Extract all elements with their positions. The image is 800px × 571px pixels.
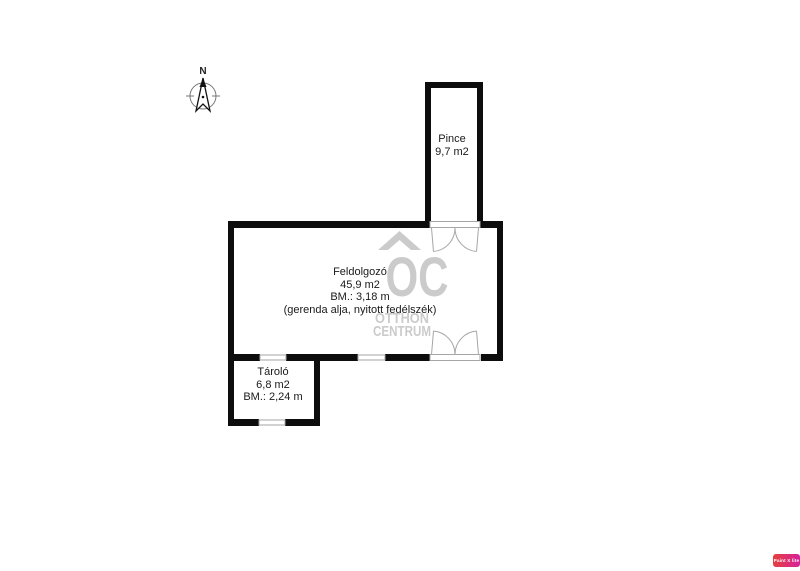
window-main-bottom [358, 355, 385, 360]
room-name: Tároló [227, 366, 319, 379]
room-label-pince: Pince 9,7 m2 [412, 133, 492, 158]
watermark-line2: CENTRUM [373, 323, 431, 340]
room-ceiling-height: BM.: 2,24 m [227, 391, 319, 404]
pince-wall-top [425, 82, 483, 88]
paint-x-lite-badge: Paint X lite [773, 554, 800, 567]
main-wall-bottom-seg1 [228, 354, 260, 361]
door-leaf-left [432, 331, 434, 355]
room-area: 45,9 m2 [240, 279, 480, 292]
compass-needle-tip [200, 78, 207, 87]
main-wall-bottom-seg3 [385, 354, 430, 361]
room-area: 6,8 m2 [227, 379, 319, 392]
compass-hub [202, 96, 205, 99]
double-door-main-bottom [430, 331, 480, 361]
north-label: N [199, 66, 206, 77]
tarolo-wall-bottom-seg1 [228, 419, 259, 426]
room-note: (gerenda alja, nyitott fedélszék) [240, 304, 480, 317]
door-frame [430, 222, 480, 228]
room-name: Pince [412, 133, 492, 146]
room-label-tarolo: Tároló 6,8 m2 BM.: 2,24 m [227, 366, 319, 404]
door-arc-right [455, 331, 477, 355]
room-area: 9,7 m2 [412, 146, 492, 159]
window-tarolo-top [260, 355, 286, 360]
main-wall-bottom-seg2 [286, 354, 358, 361]
door-leaf-right [477, 331, 479, 355]
door-leaf-right [477, 228, 479, 252]
main-wall-bottom-seg4 [481, 354, 503, 361]
room-name: Feldolgozó [240, 266, 480, 279]
floorplan-page: OC OTTHON CENTRUM N [0, 0, 800, 571]
room-label-feldolgozo: Feldolgozó 45,9 m2 BM.: 3,18 m (gerenda … [240, 266, 480, 316]
door-arc-right [455, 228, 477, 252]
window-tarolo-bottom [259, 420, 285, 425]
north-compass: N [186, 66, 220, 111]
main-wall-top-left [228, 221, 430, 228]
door-frame [430, 355, 480, 361]
room-ceiling-height: BM.: 3,18 m [240, 291, 480, 304]
door-arc-left [434, 331, 456, 355]
tarolo-wall-bottom-seg2 [285, 419, 320, 426]
main-wall-right [497, 221, 503, 361]
